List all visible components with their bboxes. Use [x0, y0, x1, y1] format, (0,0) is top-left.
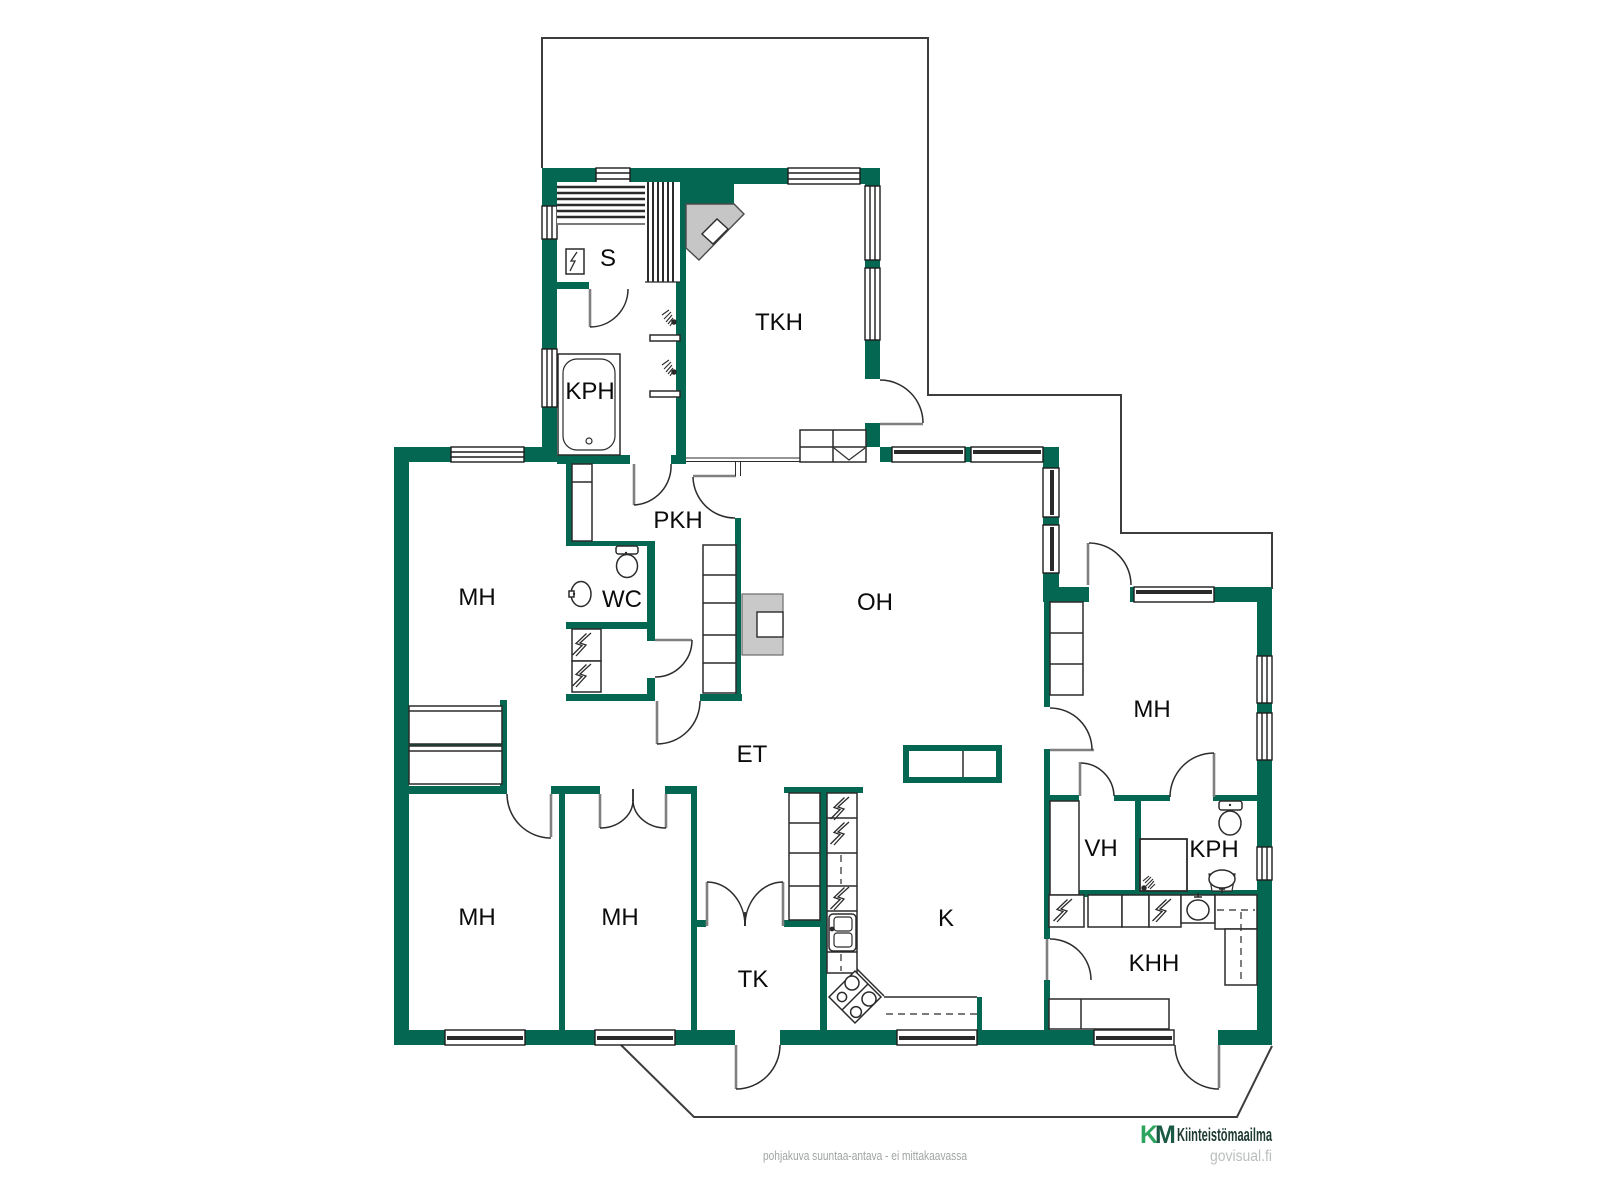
svg-text:MH: MH: [1133, 696, 1170, 723]
svg-text:MH: MH: [458, 584, 495, 611]
svg-text:KHH: KHH: [1129, 950, 1180, 977]
svg-text:VH: VH: [1084, 835, 1117, 862]
svg-text:TKH: TKH: [755, 309, 803, 336]
svg-text:WC: WC: [602, 586, 642, 613]
svg-text:OH: OH: [857, 589, 893, 616]
svg-text:S: S: [600, 245, 616, 272]
svg-text:K: K: [938, 905, 954, 932]
svg-text:govisual.fi: govisual.fi: [1210, 1148, 1272, 1165]
svg-text:TK: TK: [738, 966, 769, 993]
svg-text:PKH: PKH: [653, 507, 702, 534]
svg-text:KPH: KPH: [565, 378, 614, 405]
svg-text:KPH: KPH: [1189, 836, 1238, 863]
svg-text:ET: ET: [737, 741, 768, 768]
svg-text:pohjakuva suuntaa-antava - ei: pohjakuva suuntaa-antava - ei mittakaava…: [763, 1149, 967, 1163]
svg-text:M: M: [1155, 1121, 1176, 1149]
svg-text:MH: MH: [601, 904, 638, 931]
svg-text:Kiinteistömaailma: Kiinteistömaailma: [1177, 1125, 1273, 1145]
svg-text:MH: MH: [458, 904, 495, 931]
